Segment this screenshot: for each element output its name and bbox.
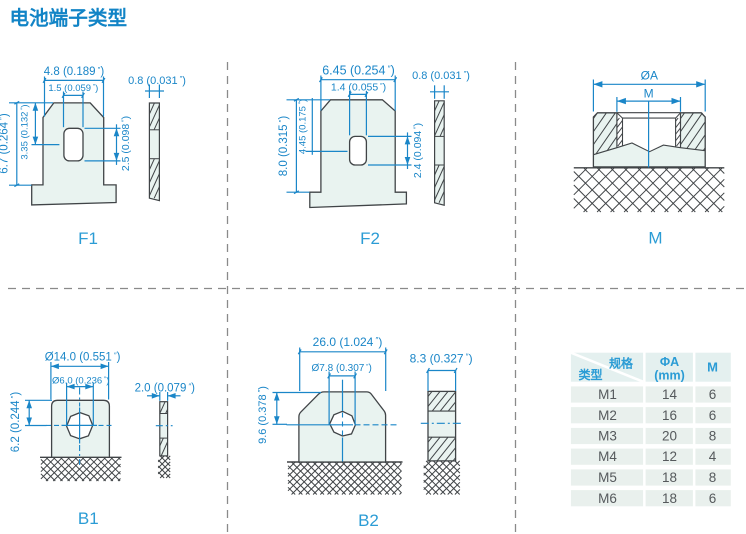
svg-text:B2: B2 (358, 511, 379, 530)
svg-text:Ø14.0 (0.551 ″): Ø14.0 (0.551 ″) (45, 351, 121, 364)
svg-text:M: M (707, 360, 718, 375)
svg-text:12: 12 (662, 449, 677, 464)
svg-text:3.35 (0.132 ″): 3.35 (0.132 ″) (19, 104, 30, 159)
svg-text:14: 14 (662, 387, 678, 402)
svg-text:26.0 (1.024 ″): 26.0 (1.024 ″) (313, 335, 383, 349)
svg-text:6: 6 (709, 387, 717, 402)
svg-text:M6: M6 (598, 491, 617, 506)
svg-text:8: 8 (709, 470, 717, 485)
svg-text:Ø6.0 (0.236 ″): Ø6.0 (0.236 ″) (52, 375, 109, 386)
svg-text:(mm): (mm) (654, 369, 685, 383)
svg-text:2.5 (0.098 ″): 2.5 (0.098 ″) (120, 116, 132, 171)
svg-text:0.8 (0.031 ″): 0.8 (0.031 ″) (412, 69, 470, 82)
svg-text:ØA: ØA (641, 69, 658, 83)
svg-text:8: 8 (709, 429, 717, 444)
svg-text:M1: M1 (598, 387, 617, 402)
svg-text:B1: B1 (78, 509, 99, 528)
svg-text:类型: 类型 (578, 367, 602, 382)
svg-text:20: 20 (662, 429, 677, 444)
svg-text:6.2 (0.244 ″): 6.2 (0.244 ″) (9, 392, 22, 453)
svg-text:M: M (648, 229, 662, 248)
svg-text:6: 6 (709, 408, 717, 423)
svg-text:9.6 (0.378 ″): 9.6 (0.378 ″) (256, 386, 269, 444)
svg-text:电池端子类型: 电池端子类型 (10, 7, 128, 30)
svg-text:4.45 (0.175 ″): 4.45 (0.175 ″) (297, 99, 308, 154)
svg-text:16: 16 (662, 408, 677, 423)
svg-text:F1: F1 (78, 229, 98, 248)
svg-text:6.7 (0.264 ″): 6.7 (0.264 ″) (0, 113, 11, 174)
svg-text:18: 18 (662, 491, 677, 506)
svg-text:ΦA: ΦA (660, 355, 679, 369)
svg-text:规格: 规格 (609, 356, 634, 371)
svg-text:M5: M5 (598, 470, 617, 485)
svg-text:4: 4 (709, 449, 717, 464)
svg-text:M3: M3 (598, 429, 617, 444)
svg-text:8.0 (0.315 ″): 8.0 (0.315 ″) (277, 116, 290, 177)
svg-text:M: M (644, 87, 654, 101)
svg-text:1.5 (0.059 ″): 1.5 (0.059 ″) (48, 83, 98, 94)
svg-text:M2: M2 (598, 408, 617, 423)
svg-text:2.0 (0.079 ″): 2.0 (0.079 ″) (135, 382, 196, 395)
svg-text:0.8 (0.031 ″): 0.8 (0.031 ″) (128, 74, 186, 87)
svg-text:6: 6 (709, 491, 717, 506)
svg-text:2.4 (0.094 ″): 2.4 (0.094 ″) (412, 123, 424, 178)
svg-text:Ø7.8 (0.307 ″): Ø7.8 (0.307 ″) (312, 363, 372, 374)
svg-text:6.45 (0.254 ″): 6.45 (0.254 ″) (322, 64, 395, 78)
svg-text:F2: F2 (360, 229, 380, 248)
svg-text:18: 18 (662, 470, 677, 485)
svg-text:1.4 (0.055 ″): 1.4 (0.055 ″) (331, 82, 386, 94)
svg-text:M4: M4 (598, 449, 617, 464)
svg-text:4.8 (0.189 ″): 4.8 (0.189 ″) (44, 65, 105, 78)
svg-text:8.3 (0.327 ″): 8.3 (0.327 ″) (410, 352, 473, 366)
